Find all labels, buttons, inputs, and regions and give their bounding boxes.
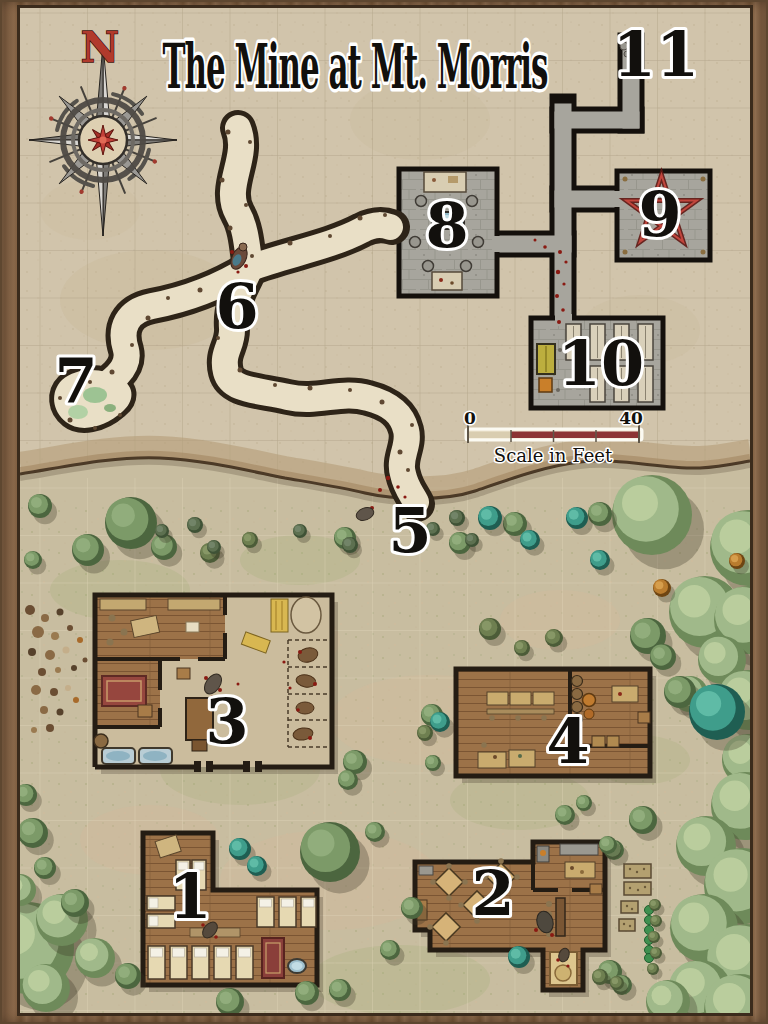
scale-end-label: 40 xyxy=(619,408,643,428)
scale-start-label: 0 xyxy=(464,408,476,428)
area-marker-5: 5 xyxy=(388,494,431,567)
scale-caption: Scale in Feet xyxy=(494,445,613,466)
area-marker-9: 9 xyxy=(638,178,681,251)
area-marker-8: 8 xyxy=(425,189,468,262)
area-marker-3: 3 xyxy=(205,685,248,758)
compass-north-label: N xyxy=(81,23,119,72)
map-screenshot: 0 40 Scale in Feet xyxy=(0,0,768,1024)
map-title: The Mine at Mt. Morris xyxy=(163,30,548,103)
area-marker-10: 10 xyxy=(558,327,644,400)
area-marker-6: 6 xyxy=(215,270,258,343)
area-marker-2: 2 xyxy=(471,857,514,930)
map-canvas: 0 40 Scale in Feet xyxy=(20,8,750,1013)
map-artwork: 0 40 Scale in Feet xyxy=(20,8,750,1013)
area-marker-7: 7 xyxy=(54,345,97,418)
area-marker-4: 4 xyxy=(546,705,589,778)
area-marker-1: 1 xyxy=(168,860,211,933)
area-marker-11: 11 xyxy=(613,18,699,91)
